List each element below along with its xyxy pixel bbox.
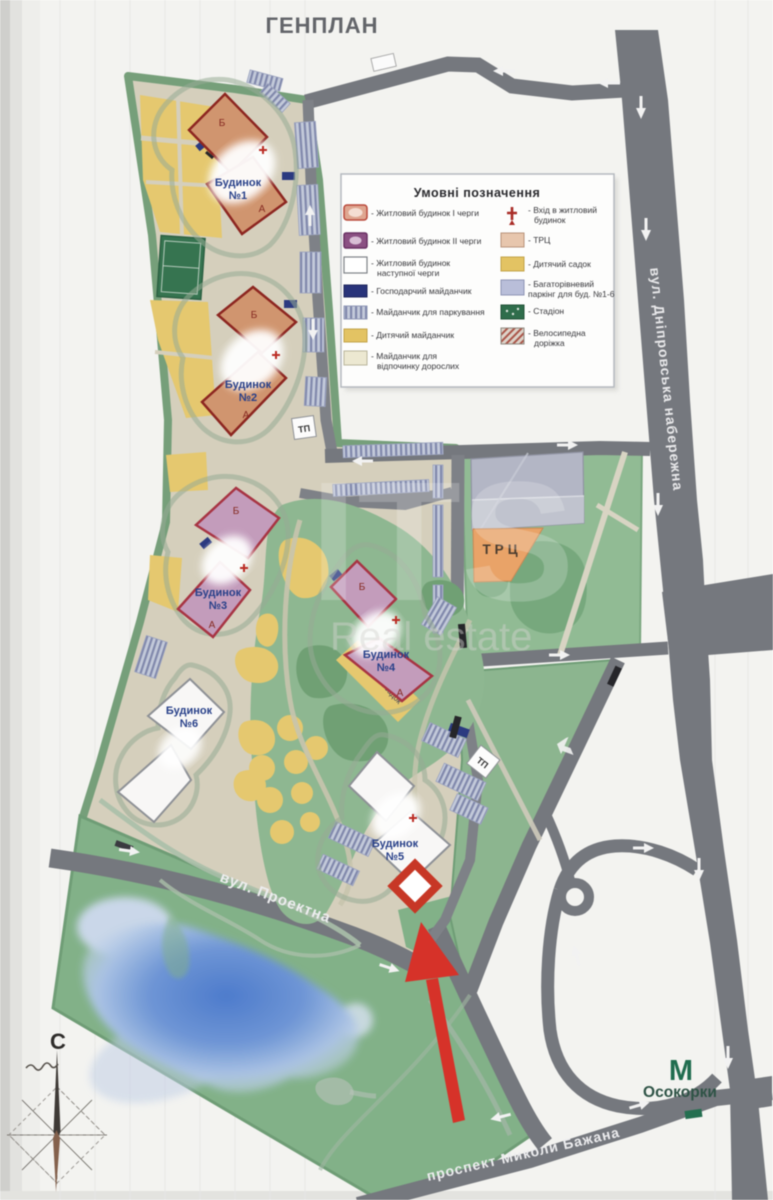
svg-text:Будинок: Будинок (225, 379, 272, 391)
svg-text:Будинок: Будинок (195, 587, 242, 599)
svg-text:Будинок: Будинок (215, 177, 262, 189)
svg-text:А: А (209, 620, 216, 631)
svg-text:Б: Б (219, 118, 226, 129)
svg-text:№5: №5 (386, 851, 404, 863)
svg-text:А: А (243, 410, 250, 421)
svg-text:Б: Б (251, 310, 258, 321)
svg-text:- Багаторівневий: - Багаторівневий (528, 279, 594, 289)
svg-text:ТП: ТП (298, 423, 311, 435)
svg-text:доріжка: доріжка (534, 338, 565, 348)
svg-text:Б: Б (233, 506, 240, 517)
svg-text:№6: №6 (180, 718, 198, 730)
svg-text:Умовні позначення: Умовні позначення (414, 186, 541, 200)
svg-text:Будинок: Будинок (372, 838, 419, 850)
svg-text:Real estate: Real estate (330, 615, 532, 659)
svg-text:А: А (397, 688, 404, 699)
svg-text:А: А (259, 204, 266, 215)
svg-text:- Велосипедна: - Велосипедна (528, 328, 586, 338)
svg-text:- Дитячий садок: - Дитячий садок (528, 259, 591, 269)
svg-text:С: С (50, 1029, 66, 1054)
svg-text:- Вхід в житловий: - Вхід в житловий (528, 205, 597, 215)
svg-text:- Житловий будинок: - Житловий будинок (371, 258, 450, 268)
svg-text:- Дитячий майданчик: - Дитячий майданчик (371, 330, 454, 340)
svg-text:ГЕНПЛАН: ГЕНПЛАН (265, 13, 378, 38)
svg-text:паркінг для буд. №1-6: паркінг для буд. №1-6 (528, 289, 615, 299)
svg-text:№1: №1 (229, 190, 247, 202)
svg-text:М: М (669, 1055, 693, 1087)
svg-text:- Майданчик для: - Майданчик для (371, 351, 437, 361)
svg-text:наступної черги: наступної черги (377, 268, 440, 278)
svg-text:- Господарчий майданчик: - Господарчий майданчик (371, 286, 472, 296)
svg-text:- Житловий будинок І черги: - Житловий будинок І черги (371, 208, 479, 218)
svg-text:№2: №2 (239, 392, 257, 404)
svg-text:ITS: ITS (310, 447, 574, 637)
svg-text:- ТРЦ: - ТРЦ (528, 235, 551, 245)
svg-text:- Майданчик для паркування: - Майданчик для паркування (371, 307, 485, 317)
svg-text:Будинок: Будинок (166, 705, 213, 717)
svg-text:будинок: будинок (534, 215, 566, 225)
svg-text:- Стадіон: - Стадіон (528, 306, 564, 316)
svg-text:№4: №4 (377, 662, 396, 674)
svg-text:№3: №3 (209, 600, 227, 612)
svg-text:Осокорки: Осокорки (643, 1084, 717, 1101)
svg-text:відпочинку дорослих: відпочинку дорослих (377, 361, 460, 371)
svg-text:- Житловий будинок ІІ черги: - Житловий будинок ІІ черги (371, 236, 482, 246)
